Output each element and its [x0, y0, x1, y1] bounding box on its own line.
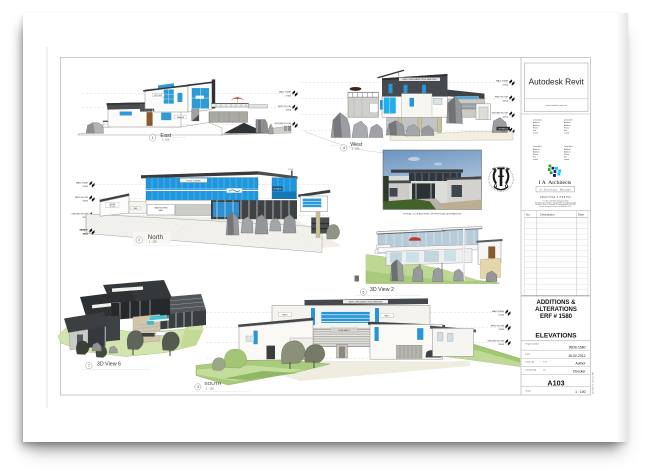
svg-text:WALL PLATE: WALL PLATE — [279, 91, 292, 94]
svg-text:GARAGE: GARAGE — [79, 229, 88, 232]
svg-text:FIRST FLOOR: FIRST FLOOR — [278, 106, 292, 108]
svg-text:15-02-2012: 15-02-2012 — [568, 354, 585, 358]
svg-text:3D View 2: 3D View 2 — [370, 287, 394, 293]
svg-text:Address: Address — [564, 124, 571, 127]
svg-text:Address: Address — [533, 121, 540, 124]
svg-text:WALL PLATE: WALL PLATE — [76, 182, 89, 185]
svg-text:SIGNAGE: SIGNAGE — [273, 188, 282, 191]
svg-text:WASH SCREEN: WASH SCREEN — [154, 207, 168, 210]
svg-text:1 : 100: 1 : 100 — [149, 241, 157, 244]
svg-text:3: 3 — [197, 385, 199, 389]
svg-text:1: 1 — [152, 136, 154, 140]
svg-text:3D View 6: 3D View 6 — [97, 361, 121, 367]
svg-text:27100: 27100 — [502, 84, 508, 86]
svg-text:FIRST FLOOR: FIRST FLOOR — [495, 97, 509, 99]
svg-text:4: 4 — [343, 146, 345, 150]
svg-text:e-mail: e-mail — [533, 133, 538, 135]
svg-text:ROOM: ROOM — [110, 206, 116, 208]
svg-text:ALTERATIONS: ALTERATIONS — [535, 307, 577, 313]
svg-text:YARD: YARD — [133, 207, 138, 210]
svg-text:FIXED SCREEN: FIXED SCREEN — [187, 180, 202, 182]
svg-text:Tel: (044) 533 1234 Fax: 086: Tel: (044) 533 1234 Fax: 086 123 4567 Ce… — [535, 202, 576, 204]
svg-text:GROUND FLOOR: GROUND FLOOR — [492, 113, 509, 115]
svg-text:WALL PLATE: WALL PLATE — [496, 80, 509, 83]
svg-text:& Interior Design: & Interior Design — [540, 188, 571, 192]
svg-text:27100: 27100 — [498, 315, 504, 317]
svg-text:Address: Address — [564, 121, 571, 124]
svg-text:Address: Address — [564, 150, 571, 153]
svg-text:2: 2 — [138, 238, 140, 242]
svg-text:ENTRANCE: ENTRANCE — [499, 128, 509, 131]
svg-text:1 : 100: 1 : 100 — [206, 388, 214, 391]
svg-text:CLAD WALLS: CLAD WALLS — [338, 329, 350, 332]
svg-text:ELEVATIONS: ELEVATIONS — [535, 332, 577, 339]
svg-text:20200: 20200 — [501, 131, 505, 133]
svg-text:19000: 19000 — [82, 233, 88, 235]
svg-text:FIRST FLOOR: FIRST FLOOR — [75, 197, 89, 199]
svg-text:FIRST FLOOR: FIRST FLOOR — [491, 325, 505, 327]
svg-text:SOUTH: SOUTH — [204, 381, 221, 387]
svg-text:27100: 27100 — [82, 186, 88, 188]
svg-text:TYPICAL LOOK AND FEEL OF PROPO: TYPICAL LOOK AND FEEL OF PROPOSED ALTERA… — [403, 213, 462, 216]
svg-text:WALL PLATE: WALL PLATE — [492, 310, 505, 313]
svg-text:Scale: Scale — [526, 390, 532, 392]
svg-text:e-mail: e-mail — [533, 159, 538, 161]
svg-text:A103: A103 — [547, 378, 564, 387]
svg-text:24700: 24700 — [502, 100, 508, 102]
svg-text:NEW CORRUGATED IRON SHEETING: NEW CORRUGATED IRON SHEETING — [403, 78, 437, 81]
svg-text:7: 7 — [88, 364, 90, 368]
svg-text:ADDITIONS &: ADDITIONS & — [537, 300, 577, 306]
svg-text:GROUND FLOOR: GROUND FLOOR — [275, 123, 292, 125]
svg-text:Checker: Checker — [573, 370, 586, 374]
svg-text:Description: Description — [541, 213, 555, 217]
svg-text:FLUE: FLUE — [289, 169, 294, 171]
svg-text:No.: No. — [526, 213, 531, 217]
svg-text:Drawn by: Drawn by — [526, 362, 534, 364]
svg-text:GARAGE: GARAGE — [177, 116, 185, 119]
svg-text:Address: Address — [533, 148, 540, 151]
svg-text:1 : 100: 1 : 100 — [352, 148, 360, 151]
svg-text:27100: 27100 — [285, 95, 291, 97]
svg-text:PCS: PCS — [543, 362, 548, 364]
svg-text:22000: 22000 — [502, 116, 508, 118]
svg-text:Date: Date — [578, 213, 584, 217]
svg-text:WDS-1580: WDS-1580 — [569, 346, 586, 350]
svg-text:Consultant: Consultant — [564, 145, 573, 148]
svg-text:24700: 24700 — [498, 329, 504, 331]
svg-text:24700: 24700 — [285, 110, 291, 112]
svg-text:www.autodesk.com/revit: www.autodesk.com/revit — [545, 104, 567, 107]
svg-text:PAINT: PAINT — [282, 313, 288, 316]
svg-text:P O Box 1234 Plettenberg Bay: P O Box 1234 Plettenberg Bay 6600 — [543, 200, 569, 203]
svg-text:SKYLIGHT: SKYLIGHT — [154, 95, 162, 97]
svg-text:e-mail: e-mail — [564, 133, 569, 135]
svg-text:Checked by: Checked by — [526, 369, 537, 371]
svg-text:NEW CORRUGATED IRON SHEETING: NEW CORRUGATED IRON SHEETING — [349, 301, 383, 304]
svg-text:I A Architects: I A Architects — [539, 180, 571, 186]
svg-text:WALL: WALL — [159, 209, 164, 212]
svg-text:5: 5 — [362, 290, 364, 294]
svg-text:WJ: WJ — [543, 369, 546, 371]
svg-text:2012/02/15 12:59:10 PM: 2012/02/15 12:59:10 PM — [592, 372, 594, 394]
svg-text:PRACTICE # PR2753: PRACTICE # PR2753 — [540, 196, 571, 199]
svg-text:Address: Address — [564, 148, 571, 151]
svg-text:ERF # 1580: ERF # 1580 — [540, 314, 573, 320]
svg-text:Author: Author — [576, 362, 587, 366]
svg-text:22000: 22000 — [498, 344, 504, 346]
svg-text:Consultant: Consultant — [564, 119, 573, 122]
svg-text:1 : 100: 1 : 100 — [162, 138, 170, 141]
svg-text:PAINT: PAINT — [384, 314, 390, 317]
svg-text:24700: 24700 — [82, 200, 88, 202]
svg-text:Autodesk Revit: Autodesk Revit — [529, 78, 585, 87]
svg-text:Address: Address — [533, 124, 540, 127]
svg-text:Consultant: Consultant — [533, 119, 542, 122]
svg-text:e-mail: e-mail — [564, 159, 569, 161]
svg-text:Address: Address — [533, 150, 540, 153]
svg-text:GROUND FLOOR: GROUND FLOOR — [488, 341, 505, 343]
svg-text:1 : 100: 1 : 100 — [575, 390, 585, 394]
svg-text:Project number: Project number — [526, 343, 540, 346]
svg-text:Date: Date — [526, 353, 531, 356]
svg-text:E-mail: design@ia-arch.co.za: E-mail: design@ia-arch.co.za (044) 501 7… — [539, 206, 571, 208]
svg-text:Consultant: Consultant — [533, 145, 542, 148]
